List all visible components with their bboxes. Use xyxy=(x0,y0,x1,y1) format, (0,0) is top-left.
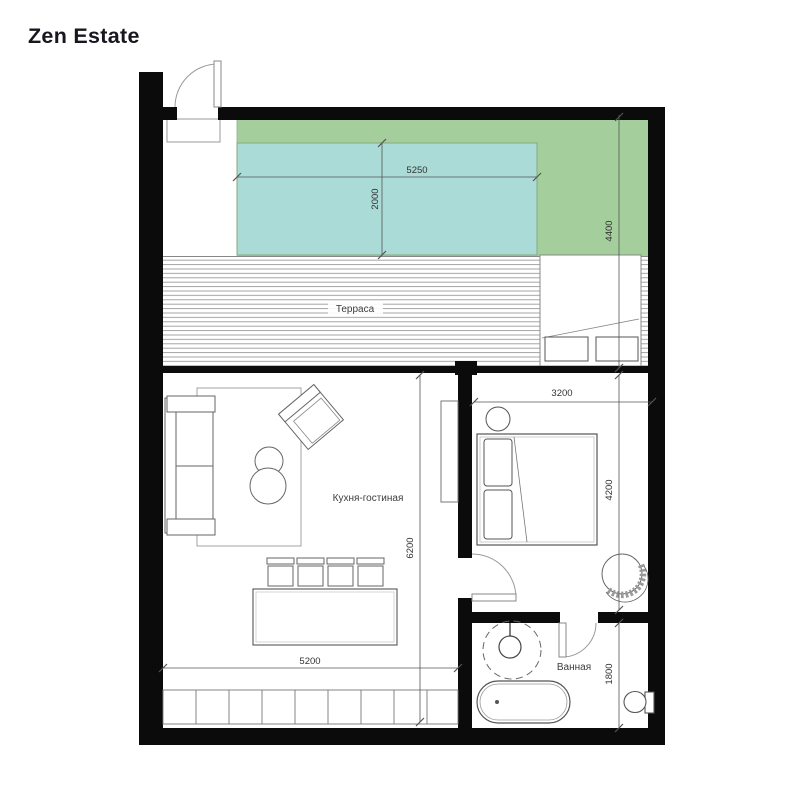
wall-entry-stub xyxy=(163,107,177,120)
entry-cabinet xyxy=(167,119,220,142)
dim-label-bathroom-length: 1800 xyxy=(604,663,615,684)
bedroom-chair xyxy=(602,554,648,602)
dim-label-living-length: 6200 xyxy=(405,537,416,558)
dim-bathroom-length xyxy=(615,619,623,732)
dim-label-bedroom-length: 4200 xyxy=(604,479,615,500)
bathroom-door xyxy=(559,623,596,657)
room-label-bathroom: Ванная xyxy=(557,662,591,673)
svg-text:Терраса: Терраса xyxy=(336,304,375,315)
armchair xyxy=(279,385,344,450)
sofa xyxy=(165,396,215,535)
kitchen-island xyxy=(253,589,397,645)
wall-facade xyxy=(163,366,648,373)
dim-label-pool-width: 5250 xyxy=(406,165,427,176)
bed xyxy=(477,434,597,545)
nightstand xyxy=(486,407,510,431)
dim-living-length xyxy=(416,371,424,726)
bar-stools xyxy=(267,558,384,586)
bathtub xyxy=(477,681,570,723)
shower xyxy=(483,621,541,679)
room-label-terrace: Терраса xyxy=(328,302,383,315)
floor-plan-canvas: Zen Estate xyxy=(0,0,800,800)
floor-plan-page: Zen Estate xyxy=(0,0,800,800)
wall-top xyxy=(218,107,665,120)
pool xyxy=(237,143,537,255)
wall-bathroom-top-right xyxy=(598,612,650,623)
wall-living-bathroom xyxy=(458,598,472,728)
dim-label-pool-length: 2000 xyxy=(370,188,381,209)
wall-right xyxy=(648,107,665,745)
bedroom-door xyxy=(472,554,516,601)
dim-bedroom-width xyxy=(470,398,656,406)
wall-living-bedroom xyxy=(458,371,472,558)
wall-bottom xyxy=(139,728,665,745)
page-title: Zen Estate xyxy=(28,24,140,48)
wall-left xyxy=(139,72,163,745)
dim-label-living-width: 5200 xyxy=(299,656,320,667)
toilet xyxy=(624,692,654,714)
dim-label-bedroom-width: 3200 xyxy=(551,388,572,399)
tv-cabinet xyxy=(441,401,458,502)
entry-door xyxy=(175,61,221,107)
room-label-kitchen-living: Кухня-гостиная xyxy=(333,493,404,504)
coffee-table xyxy=(250,447,286,504)
sun-lounger xyxy=(540,255,641,366)
kitchen-counter xyxy=(163,690,458,724)
dim-label-yard-depth: 4400 xyxy=(604,220,615,241)
